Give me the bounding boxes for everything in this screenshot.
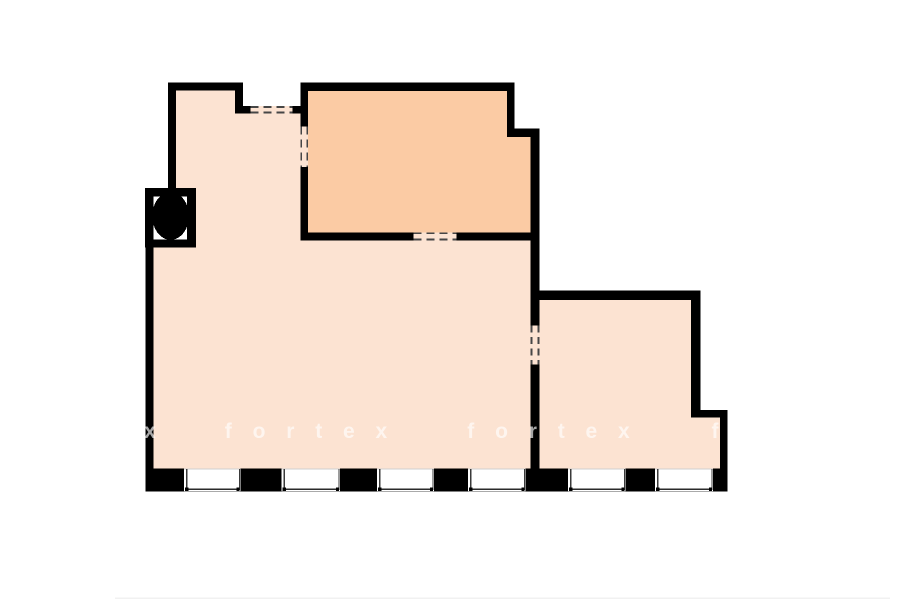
svg-text:fortex: fortex <box>0 420 177 443</box>
svg-text:fortex: fortex <box>225 420 408 443</box>
svg-text:fortex: fortex <box>712 420 895 443</box>
svg-text:fortex: fortex <box>467 420 650 443</box>
